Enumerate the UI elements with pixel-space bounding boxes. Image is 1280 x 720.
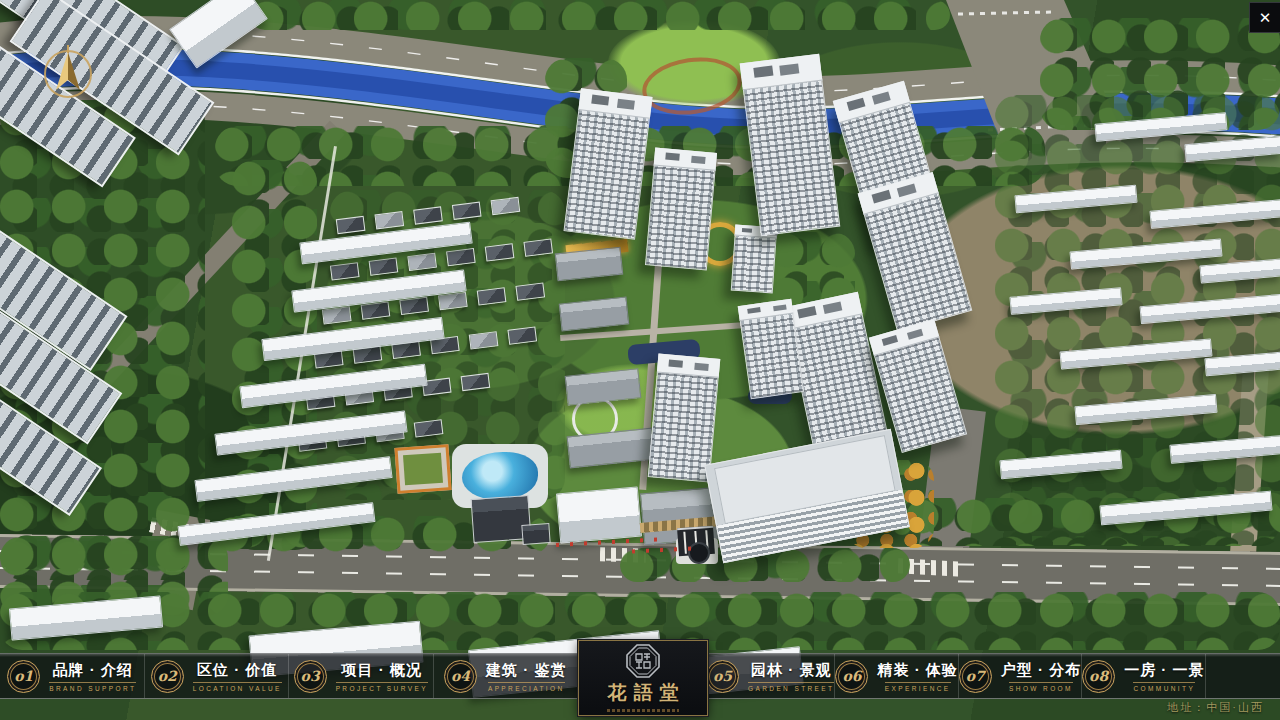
nav-item-subtitle: GARDEN STREET (748, 682, 834, 692)
nav-group-right: o5 园林 · 景观 GARDEN STREET o6 精装 · 体验 EXPE… (706, 654, 1280, 698)
logo-seal-icon (626, 644, 660, 678)
project-logo-panel[interactable]: 花語堂 (578, 640, 708, 716)
nav-item-interior[interactable]: o6 精装 · 体验 EXPERIENCE (835, 654, 958, 698)
masterplan-viewport[interactable]: ✕ o1 品牌 · 介绍 BRAND SUPPORT o2 区位 · 价值 LO… (0, 0, 1280, 720)
nav-item-location[interactable]: o2 区位 · 价值 LOCATION VALUE (145, 654, 290, 698)
nav-item-label: 精装 · 体验 (877, 661, 957, 680)
nav-item-subtitle: PROJECT SURVEY (336, 682, 428, 692)
residential-tower (858, 172, 973, 332)
nav-item-label: 项目 · 概况 (342, 661, 422, 680)
nav-item-label: 户型 · 分布 (1001, 661, 1081, 680)
nav-item-label: 区位 · 价值 (197, 661, 277, 680)
nav-item-garden[interactable]: o5 园林 · 景观 GARDEN STREET (706, 654, 835, 698)
nav-item-project[interactable]: o3 项目 · 概况 PROJECT SURVEY (289, 654, 434, 698)
nav-item-label: 园林 · 景观 (751, 661, 831, 680)
grove (995, 95, 1280, 545)
nav-number-badge: o3 (294, 660, 327, 693)
nav-item-label: 一房 · 一景 (1124, 661, 1204, 680)
logo-subtitle-line (607, 709, 679, 712)
nav-item-subtitle: APPRECIATION (488, 682, 565, 692)
nav-item-label: 品牌 · 介绍 (53, 661, 133, 680)
nav-item-subtitle: LOCATION VALUE (193, 682, 282, 692)
plaza-fountain (688, 542, 710, 564)
nav-filler (1206, 654, 1280, 698)
midrise-building (559, 297, 630, 332)
nav-item-subtitle: BRAND SUPPORT (49, 682, 136, 692)
chinese-roof-pavilion (521, 523, 550, 545)
clubhouse (394, 444, 451, 494)
nav-item-view[interactable]: o8 一房 · 一景 COMMUNITY (1082, 654, 1205, 698)
nav-number-badge: o5 (706, 660, 739, 693)
close-icon[interactable]: ✕ (1249, 2, 1280, 33)
nav-group-left: o1 品牌 · 介绍 BRAND SUPPORT o2 区位 · 价值 LOCA… (0, 654, 578, 698)
project-logo-title: 花語堂 (601, 680, 686, 706)
nav-item-label: 建筑 · 鉴赏 (486, 661, 566, 680)
project-address: 地址：中国·山西 (1167, 700, 1264, 715)
nav-item-subtitle: SHOW ROOM (1009, 682, 1073, 692)
nav-number-badge: o1 (7, 660, 40, 693)
nav-number-badge: o2 (151, 660, 184, 693)
compass-icon (40, 44, 96, 100)
nav-item-subtitle: EXPERIENCE (885, 682, 951, 692)
nav-item-subtitle: COMMUNITY (1133, 682, 1195, 692)
swimming-pool (462, 452, 538, 500)
residential-tower (645, 148, 717, 271)
nav-item-floorplan[interactable]: o7 户型 · 分布 SHOW ROOM (959, 654, 1082, 698)
nav-number-badge: o8 (1082, 660, 1115, 693)
midrise-building (555, 247, 624, 282)
nav-item-architecture[interactable]: o4 建筑 · 鉴赏 APPRECIATION (434, 654, 579, 698)
grove (250, 0, 950, 30)
nav-number-badge: o7 (959, 660, 992, 693)
nav-number-badge: o4 (444, 660, 477, 693)
nav-item-brand[interactable]: o1 品牌 · 介绍 BRAND SUPPORT (0, 654, 145, 698)
sales-gallery (556, 487, 642, 544)
nav-number-badge: o6 (835, 660, 868, 693)
